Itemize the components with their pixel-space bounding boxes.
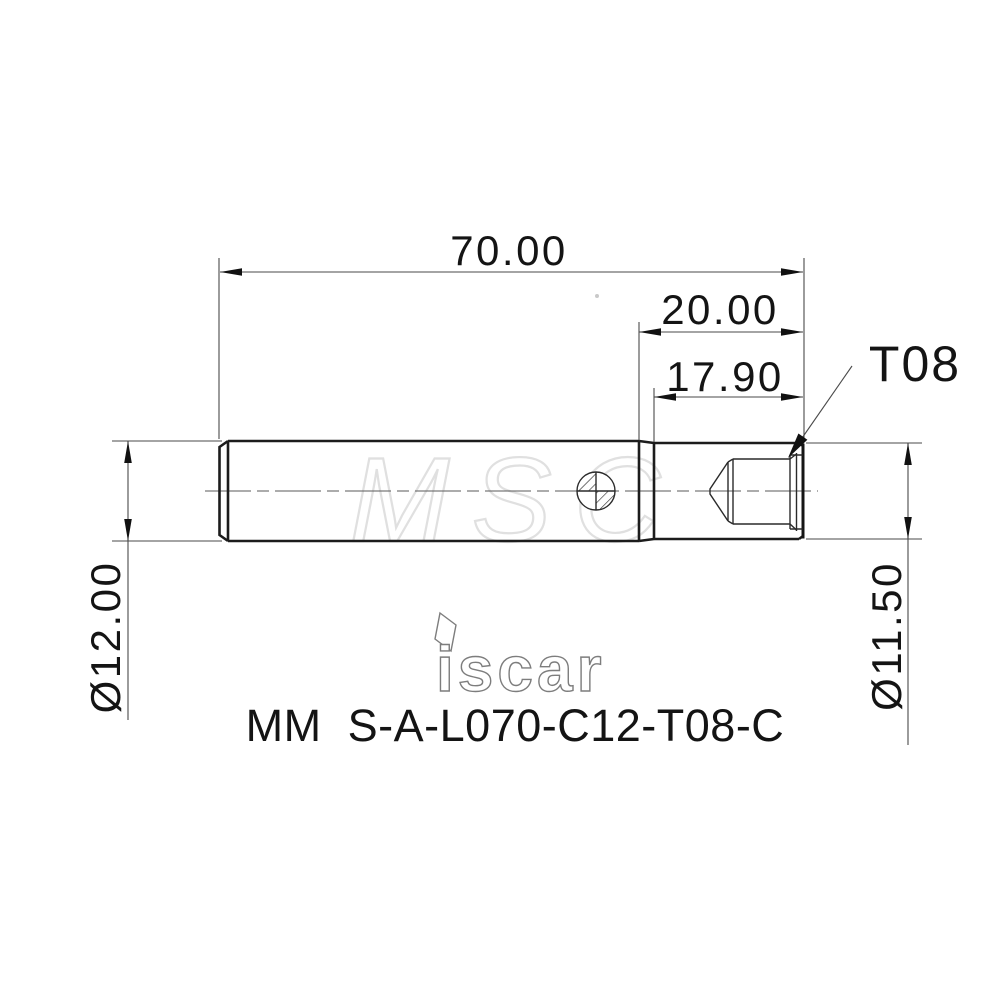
arrowhead-up (904, 443, 912, 465)
dim-overall-length-label: 70.00 (450, 227, 568, 274)
thread-internal (710, 453, 803, 531)
thread-chamfers (728, 454, 797, 530)
dim-thread-length: 17.90 (654, 353, 803, 442)
dim-head-diameter: Ø11.50 (806, 443, 922, 745)
arrowhead-down (904, 517, 912, 539)
iscar-logo-text: iscar (436, 633, 605, 705)
speck-artifact (595, 294, 599, 298)
arrowhead-down (124, 519, 132, 541)
arrowhead-right (781, 393, 803, 401)
technical-drawing-canvas: MSC (0, 0, 1000, 1000)
iscar-logo: iscar (435, 613, 605, 705)
dim-thread-length-label: 17.90 (666, 353, 784, 400)
arrowhead-left (220, 268, 242, 276)
dim-shank-diameter-label: Ø12.00 (82, 561, 129, 714)
drawing-sheet: MSC (0, 0, 1000, 1000)
thread-size-callout: T08 (788, 336, 961, 458)
arrowhead-right (781, 268, 803, 276)
leader-line (800, 366, 852, 441)
msc-watermark: MSC (350, 433, 683, 567)
thread-size-label: T08 (869, 336, 961, 392)
dim-head-diameter-label: Ø11.50 (863, 561, 910, 711)
part-number-label: MM S-A-L070-C12-T08-C (246, 700, 785, 751)
setscrew-hole (577, 472, 615, 510)
arrowhead-up (124, 441, 132, 463)
arrowhead-right (781, 328, 803, 336)
dim-shank-diameter: Ø12.00 (82, 441, 222, 720)
arrowhead-left (639, 328, 661, 336)
dim-head-length-label: 20.00 (661, 286, 779, 333)
dim-overall-length: 70.00 (219, 227, 804, 441)
